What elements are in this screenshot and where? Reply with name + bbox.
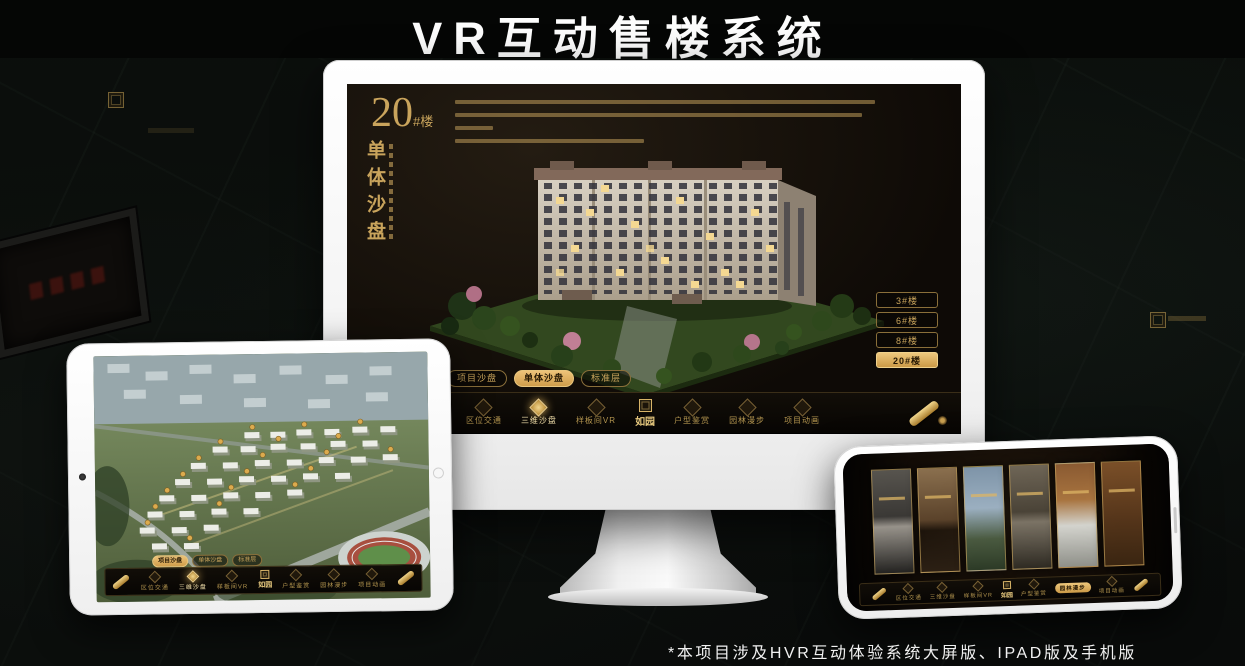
nav-item-3d-sandtable[interactable]: 三维沙盘 <box>521 401 557 426</box>
nav-item-showroom-vr[interactable]: 样板间VR <box>576 401 616 426</box>
building-3d-model[interactable] <box>422 156 892 396</box>
logo-seal-icon <box>1002 580 1010 588</box>
view-tabs: 项目沙盘 单体沙盘 标准层 <box>447 370 631 387</box>
scroll-icon[interactable] <box>872 587 887 601</box>
scroll-icon[interactable] <box>903 401 949 427</box>
nav-item-location[interactable]: 区位交通 <box>466 401 502 426</box>
gallery-card[interactable] <box>963 465 1007 571</box>
brand-logo: 如园 <box>1000 580 1013 598</box>
map-watermark-icon <box>1150 312 1166 328</box>
logo-seal-icon <box>639 399 652 412</box>
tablet-home-button[interactable] <box>433 467 444 478</box>
nav-item-garden-walk[interactable]: 园林漫步 <box>320 569 348 588</box>
nav-item-showroom-vr[interactable]: 样板间VR <box>217 571 249 590</box>
logo-text: 如园 <box>635 413 655 428</box>
nav-item-location[interactable]: 区位交通 <box>895 584 922 602</box>
diamond-emblem-icon <box>475 398 493 416</box>
floor-button-8[interactable]: 8#楼 <box>876 332 938 348</box>
tablet-device: 项目沙盘 单体沙盘 标准层 区位交通 三维沙盘 样板间VR <box>66 338 454 615</box>
diamond-emblem-icon <box>793 398 811 416</box>
nav-label: 三维沙盘 <box>930 592 956 601</box>
logo-seal-icon <box>260 570 269 579</box>
logo-text: 如园 <box>1001 589 1013 598</box>
nav-item-unit-gallery[interactable]: 户型鉴赏 <box>1020 580 1047 598</box>
nav-label: 区位交通 <box>896 593 922 602</box>
floor-title-caption <box>389 144 393 240</box>
phone-screen: 区位交通 三维沙盘 样板间VR 如园 户型鉴赏 <box>842 443 1173 611</box>
floor-title-unit: #楼 <box>413 114 433 129</box>
tablet-camera-icon <box>79 473 86 480</box>
footnote: *本项目涉及HVR互动体验系统大屏版、IPAD版及手机版 <box>668 639 1137 663</box>
gallery-card[interactable] <box>1055 462 1099 568</box>
tab-single-sandtable[interactable]: 单体沙盘 <box>514 370 574 387</box>
diamond-emblem-icon <box>683 398 701 416</box>
tablet-navbar: 区位交通 三维沙盘 样板间VR 如园 户型鉴赏 <box>104 564 422 596</box>
map-watermark-label <box>1168 316 1206 321</box>
gallery-card[interactable] <box>871 468 915 574</box>
logo-text: 如园 <box>258 580 272 590</box>
nav-label: 样板间VR <box>217 581 248 590</box>
phone-side-button[interactable] <box>1173 507 1177 533</box>
nav-label: 样板间VR <box>964 591 993 600</box>
nav-item-unit-gallery[interactable]: 户型鉴赏 <box>674 401 710 426</box>
project-description-text <box>455 100 875 152</box>
diamond-emblem-icon <box>587 398 605 416</box>
nav-item-3d-sandtable[interactable]: 三维沙盘 <box>929 583 956 601</box>
nav-item-garden-walk[interactable]: 园林漫步 <box>1055 582 1091 593</box>
tab-single-sandtable[interactable]: 单体沙盘 <box>192 554 228 567</box>
floor-button-20[interactable]: 20#楼 <box>876 352 938 368</box>
scroll-icon[interactable] <box>112 574 131 591</box>
floor-title-subtitle: 单体沙盘 <box>361 140 388 248</box>
panorama-gallery <box>843 459 1172 575</box>
tablet-screen: 项目沙盘 单体沙盘 标准层 区位交通 三维沙盘 样板间VR <box>93 352 430 603</box>
scroll-icon[interactable] <box>1133 578 1148 592</box>
nav-item-project-animation[interactable]: 项目动画 <box>1098 577 1125 595</box>
nav-item-project-animation[interactable]: 项目动画 <box>358 569 386 588</box>
floor-title-number: 20 <box>371 90 413 136</box>
gallery-card[interactable] <box>1101 460 1145 566</box>
tab-standard-floor[interactable]: 标准层 <box>232 554 262 566</box>
nav-label: 园林漫步 <box>1060 583 1086 592</box>
page-title: VR互动售楼系统 <box>0 2 1245 67</box>
tab-project-sandtable[interactable]: 项目沙盘 <box>152 555 188 568</box>
scroll-icon[interactable] <box>396 570 415 587</box>
nav-item-location[interactable]: 区位交通 <box>141 572 169 591</box>
nav-item-project-animation[interactable]: 项目动画 <box>784 401 820 426</box>
brand-logo: 如园 <box>635 399 655 428</box>
phone-device: 区位交通 三维沙盘 样板间VR 如园 户型鉴赏 <box>833 435 1183 620</box>
gallery-card[interactable] <box>1009 464 1053 570</box>
nav-label: 园林漫步 <box>320 579 348 588</box>
tab-standard-floor[interactable]: 标准层 <box>581 370 631 387</box>
nav-label: 项目动画 <box>358 579 386 588</box>
diamond-emblem-icon <box>530 398 548 416</box>
floor-selector: 3#楼 6#楼 8#楼 20#楼 <box>876 292 938 368</box>
poster-canvas: VR互动售楼系统 20#楼 单体沙盘 <box>0 0 1245 666</box>
nav-label: 户型鉴赏 <box>282 580 310 589</box>
map-watermark-icon <box>108 92 124 108</box>
nav-item-garden-walk[interactable]: 园林漫步 <box>729 401 765 426</box>
monitor-stand-base <box>548 588 768 606</box>
diamond-emblem-icon <box>738 398 756 416</box>
nav-item-3d-sandtable[interactable]: 三维沙盘 <box>179 571 207 590</box>
brand-logo: 如园 <box>258 570 272 590</box>
map-watermark-label <box>148 128 194 133</box>
floor-button-6[interactable]: 6#楼 <box>876 312 938 328</box>
nav-item-showroom-vr[interactable]: 样板间VR <box>963 582 993 600</box>
tab-project-sandtable[interactable]: 项目沙盘 <box>447 370 507 387</box>
gallery-card[interactable] <box>917 467 961 573</box>
floor-title: 20#楼 <box>371 92 433 134</box>
floor-button-3[interactable]: 3#楼 <box>876 292 938 308</box>
nav-item-unit-gallery[interactable]: 户型鉴赏 <box>282 570 310 589</box>
